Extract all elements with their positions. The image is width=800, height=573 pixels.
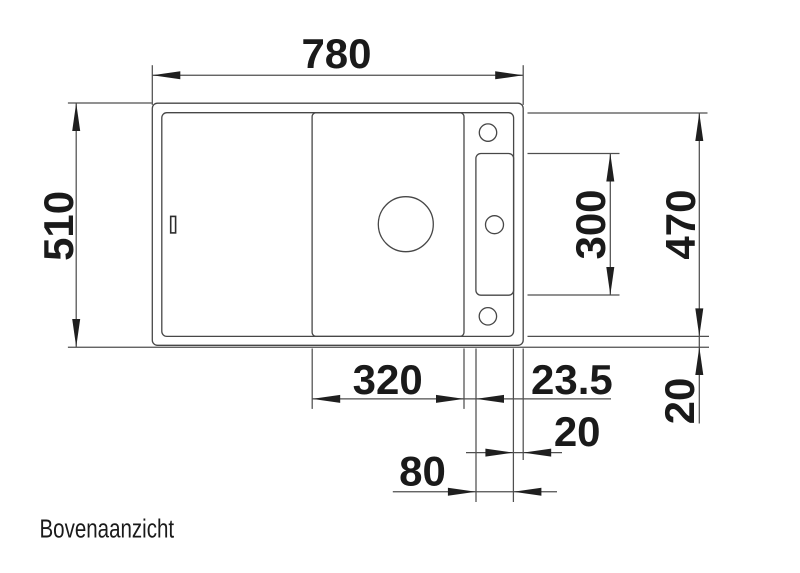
- svg-text:510: 510: [35, 191, 82, 261]
- svg-text:20: 20: [656, 378, 703, 425]
- svg-text:20: 20: [554, 408, 601, 455]
- svg-text:23.5: 23.5: [531, 356, 613, 403]
- svg-text:780: 780: [301, 30, 371, 77]
- svg-text:470: 470: [657, 190, 704, 260]
- svg-text:80: 80: [399, 448, 446, 495]
- svg-text:320: 320: [353, 356, 423, 403]
- svg-text:Bovenaanzicht: Bovenaanzicht: [40, 514, 175, 543]
- svg-text:300: 300: [567, 189, 614, 259]
